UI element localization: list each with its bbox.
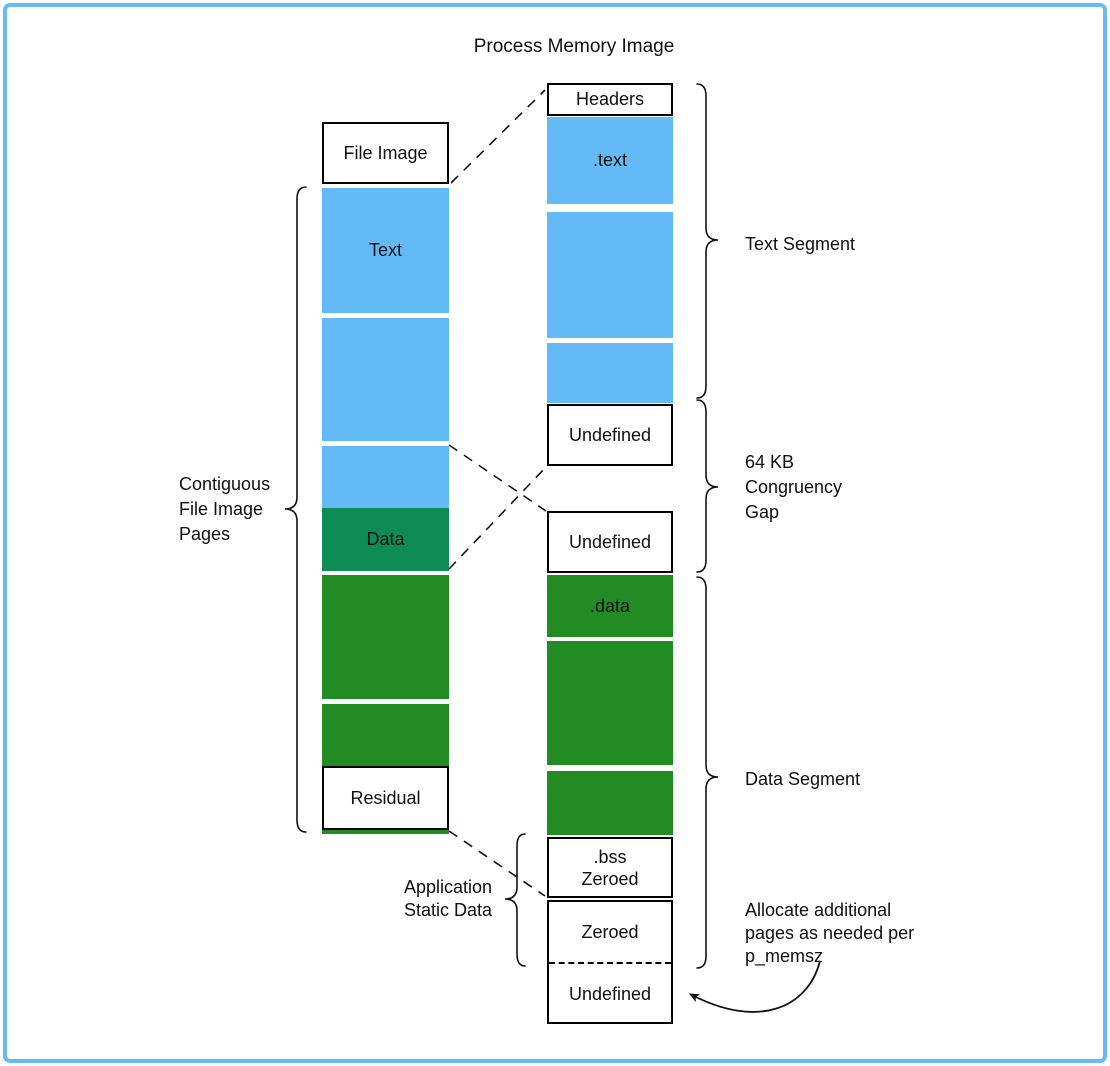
application-static-data-brace — [505, 834, 525, 966]
connector-cross-down — [449, 445, 546, 511]
zeroed-section: Zeroed — [549, 902, 671, 964]
data-section-label: .data — [590, 596, 630, 617]
congruency-gap-label: 64 KB Congruency Gap — [745, 450, 842, 525]
residual-label: Residual — [350, 788, 420, 809]
mem-text-section: .text — [547, 117, 673, 204]
residual-box: Residual — [322, 766, 449, 830]
undefined-box-1: Undefined — [547, 404, 673, 466]
contiguous-pages-brace — [285, 187, 306, 832]
diagram-title: Process Memory Image — [424, 36, 724, 58]
allocate-pages-label: Allocate additional pages as needed per … — [745, 899, 914, 968]
file-data-page-3 — [322, 704, 449, 766]
contiguous-pages-label: Contiguous File Image Pages — [179, 472, 270, 547]
application-static-data-label: Application Static Data — [404, 876, 492, 922]
undefined-label-1: Undefined — [569, 425, 651, 446]
headers-box: Headers — [547, 83, 673, 116]
bss-label-line1: .bss — [593, 846, 626, 868]
data-segment-brace — [697, 577, 718, 968]
undefined-box-2: Undefined — [547, 511, 673, 573]
mem-data-page-2 — [547, 641, 673, 765]
zeroed-label: Zeroed — [581, 922, 638, 943]
text-segment-brace — [697, 84, 718, 398]
undefined-label-3: Undefined — [569, 984, 651, 1005]
connector-fileimage-headers — [451, 90, 545, 183]
text-segment-label: Text Segment — [745, 232, 855, 257]
file-data-page-1: Data — [322, 508, 449, 571]
bss-box: .bss Zeroed — [547, 837, 673, 898]
data-segment-label: Data Segment — [745, 767, 860, 792]
allocate-arrow — [690, 961, 820, 1012]
connector-cross-up — [449, 467, 546, 569]
zeroed-undefined-box: Zeroed Undefined — [547, 900, 673, 1024]
file-image-label: File Image — [343, 143, 427, 164]
mem-text-page-3 — [547, 343, 673, 403]
mem-data-section: .data — [547, 575, 673, 637]
undefined-section: Undefined — [549, 964, 671, 1024]
text-section-label: .text — [593, 150, 627, 171]
headers-label: Headers — [576, 89, 644, 110]
file-text-page-3 — [322, 446, 449, 508]
file-text-page-2 — [322, 318, 449, 441]
file-data-page-2 — [322, 575, 449, 699]
file-text-page-1: Text — [322, 188, 449, 313]
process-memory-diagram: Process Memory Image File Image Text Dat… — [0, 0, 1110, 1066]
file-text-label: Text — [369, 240, 402, 261]
undefined-label-2: Undefined — [569, 532, 651, 553]
file-data-label: Data — [366, 529, 404, 550]
congruency-gap-brace — [697, 400, 718, 572]
mem-text-page-2 — [547, 212, 673, 338]
mem-data-page-3 — [547, 771, 673, 835]
file-image-box: File Image — [322, 122, 449, 184]
bss-label-line2: Zeroed — [581, 868, 638, 890]
